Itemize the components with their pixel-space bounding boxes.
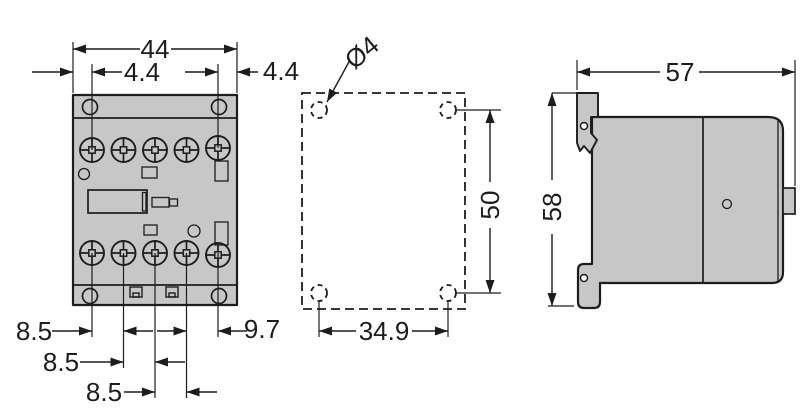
drill-hole — [311, 285, 327, 301]
dim-label-hole-spacing-vertical: 50 — [475, 191, 505, 220]
hook-pivot-hole — [581, 123, 588, 130]
contactor-dimension-drawing: 44 4.4 4.4 8.5 9.7 8.5 — [0, 0, 807, 420]
drill-hole — [440, 285, 456, 301]
hole-vertical-dimension: 50 — [456, 110, 505, 293]
screw-terminal — [143, 138, 167, 162]
dim-label-front-pitch-3: 8.5 — [86, 377, 122, 407]
dim-label-front-pitch-last: 9.7 — [244, 314, 280, 344]
side-height-dimension: 58 — [537, 93, 578, 306]
technical-drawing-page: 44 4.4 4.4 8.5 9.7 8.5 — [0, 0, 807, 420]
hole-horizontal-dimension: 34.9 — [319, 301, 448, 346]
foot-pivot-hole — [581, 275, 588, 282]
hole-diameter-leader — [327, 60, 350, 102]
drill-hole — [311, 102, 327, 118]
front-latch-tab — [783, 188, 795, 214]
dim-label-side-height: 58 — [537, 193, 567, 222]
side-view: 57 58 — [537, 57, 795, 308]
front-view: 44 4.4 4.4 8.5 9.7 8.5 — [16, 34, 299, 407]
dim-label-side-depth: 57 — [666, 57, 695, 87]
contactor-side-body — [578, 117, 783, 308]
dim-label-front-pitch-1: 8.5 — [16, 316, 52, 346]
dim-label-front-offset-left: 4.4 — [124, 57, 160, 87]
footprint-outline — [302, 93, 465, 309]
dim-label-hole-spacing-horizontal: 34.9 — [359, 316, 410, 346]
drill-hole — [440, 102, 456, 118]
dim-label-front-offset-right: 4.4 — [263, 56, 299, 86]
mounting-hole-pattern-view: Ø4 50 34.9 — [302, 30, 505, 346]
dim-label-front-pitch-2: 8.5 — [43, 347, 79, 377]
screw-terminal — [175, 138, 199, 162]
screw-terminal — [112, 138, 136, 162]
